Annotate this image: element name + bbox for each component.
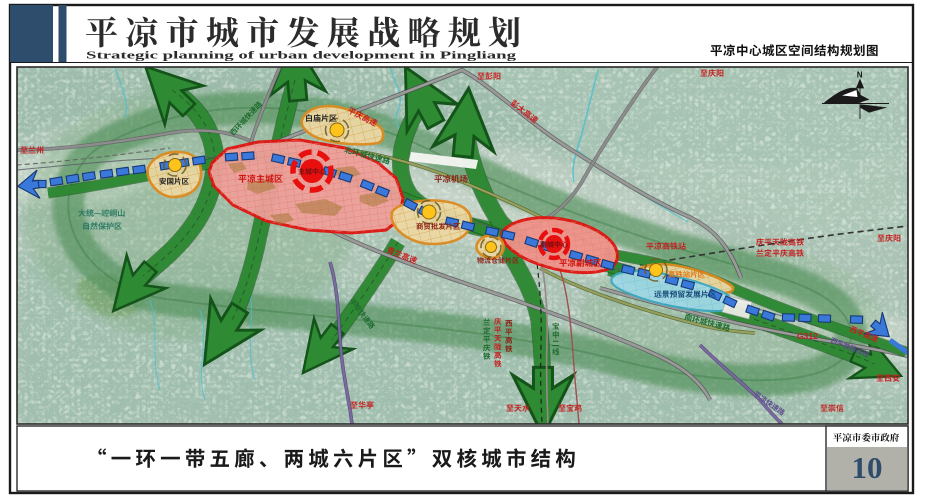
svg-text:Strategic planning of urban de: Strategic planning of urban development … — [86, 50, 516, 61]
svg-text:N: N — [857, 71, 863, 80]
svg-text:G312: G312 — [797, 331, 818, 341]
svg-text:10: 10 — [852, 450, 883, 485]
